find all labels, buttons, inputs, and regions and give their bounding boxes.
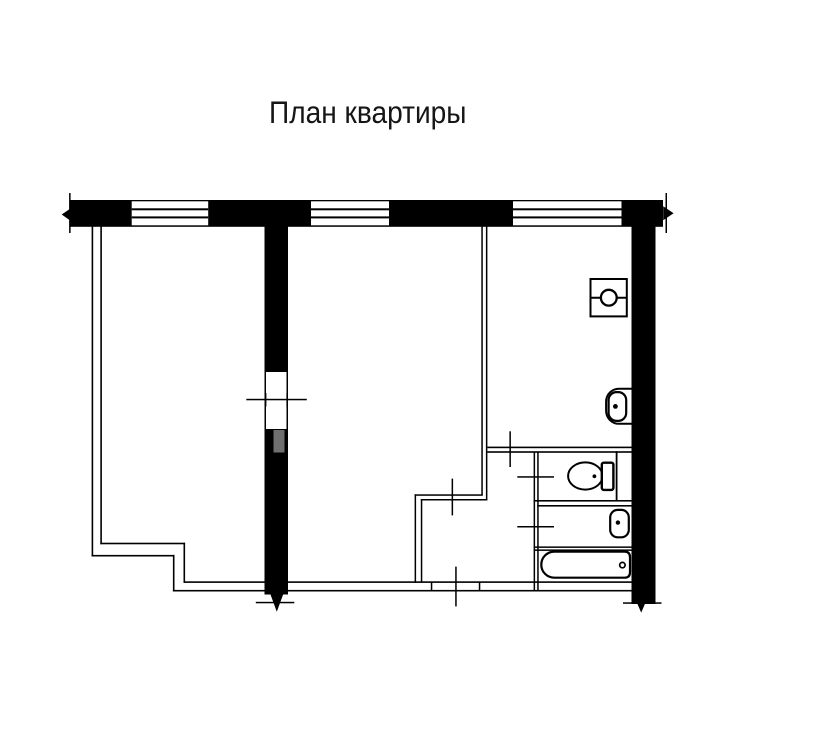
svg-text:План квартиры: План квартиры — [269, 94, 467, 130]
